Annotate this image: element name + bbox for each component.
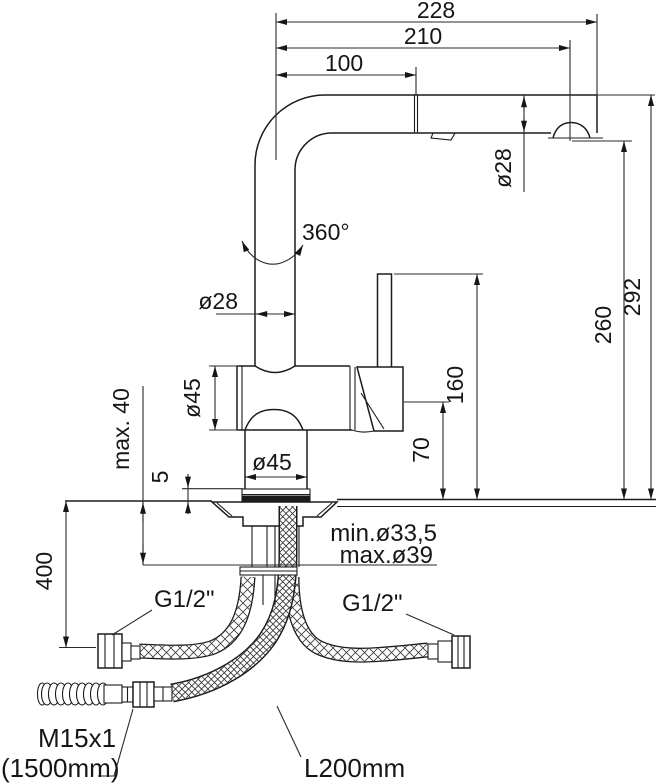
plate-height-label: 5: [147, 471, 173, 484]
m15-thread-label: M15x1: [38, 723, 116, 753]
m15-nut: [133, 682, 154, 707]
dim-height-overall: 292: [597, 95, 655, 500]
drawing-canvas: 360° 228 210 100 ø28 ø28 ø45 ø: [0, 0, 656, 784]
g12-right-label: G1/2": [342, 590, 403, 617]
dim-height-outlet: 260: [572, 141, 632, 500]
dim-292-label: 292: [619, 278, 645, 316]
dim-260-label: 260: [590, 306, 616, 344]
hole-diameter-note: min.ø33,5 max.ø39: [330, 520, 437, 569]
dim-column-dia: ø28: [198, 288, 295, 314]
hole-max-label: max.ø39: [340, 542, 433, 569]
swivel-indicator: 360°: [242, 219, 350, 264]
swivel-angle-label: 360°: [302, 219, 350, 245]
leader-l200: [277, 706, 301, 757]
aerator-dome: [553, 123, 590, 139]
max40-label: max. 40: [108, 388, 134, 470]
countertop: [65, 500, 656, 507]
base-intersection-arch: [245, 410, 303, 431]
dim-100-label: 100: [325, 50, 363, 76]
dim-reach-joint: 100: [276, 50, 416, 95]
left-nut-collar: [122, 643, 131, 661]
mounting-flange: [212, 502, 337, 526]
dim-plate-height: 5: [147, 471, 243, 514]
column-dia-label: ø28: [198, 288, 238, 314]
left-hose-ferrule: [131, 646, 140, 659]
base-gasket: [242, 496, 310, 502]
connector-sleeve: [104, 685, 122, 703]
right-supply-fitting: [428, 636, 470, 668]
g12-left-label: G1/2": [154, 586, 215, 613]
dim-160-label: 160: [442, 366, 468, 404]
column-body-fillet: [255, 366, 295, 373]
left-g12-nut: [98, 634, 122, 668]
hose-length-label: L200mm: [304, 753, 405, 783]
right-hose-ferrule: [428, 644, 438, 659]
dim-228-label: 228: [417, 0, 455, 23]
dim-height-handle: 70: [404, 402, 449, 500]
body-dia-label: ø45: [179, 378, 205, 418]
faucet-dimension-drawing: 360° 228 210 100 ø28 ø28 ø45 ø: [0, 0, 656, 784]
right-nut-collar: [438, 641, 452, 662]
leader-g12-right: [406, 614, 454, 635]
dim-height-lever: 160: [394, 274, 483, 500]
leader-g12-left: [112, 610, 152, 635]
dim-spout-dia: ø28: [490, 95, 524, 192]
flange-slant-left: [217, 503, 232, 516]
handle-hub: [357, 367, 403, 431]
dim-70-label: 70: [408, 437, 434, 463]
hub-bottom-curve: [352, 430, 374, 432]
dim-reach-outlet: 210: [276, 23, 570, 141]
swivel-arc: [242, 241, 303, 264]
m15-length-label: (1500mm): [1, 753, 119, 783]
spray-hose-connector: [38, 682, 173, 707]
base-dia-label: ø45: [252, 449, 292, 475]
handle-lever: [378, 274, 392, 367]
spout-dia-label: ø28: [490, 148, 516, 188]
right-g12-nut: [452, 636, 470, 668]
dim-body-dia: ø45: [179, 366, 240, 430]
left-supply-fitting: [98, 634, 140, 668]
sprayhead-clip-tab: [431, 133, 455, 140]
mounting-assembly: [212, 502, 337, 567]
dim-base-dia: ø45: [245, 449, 307, 477]
dim-210-label: 210: [404, 23, 442, 49]
dim-hose-drop: 400: [31, 501, 96, 648]
dim-400-label: 400: [31, 552, 57, 590]
